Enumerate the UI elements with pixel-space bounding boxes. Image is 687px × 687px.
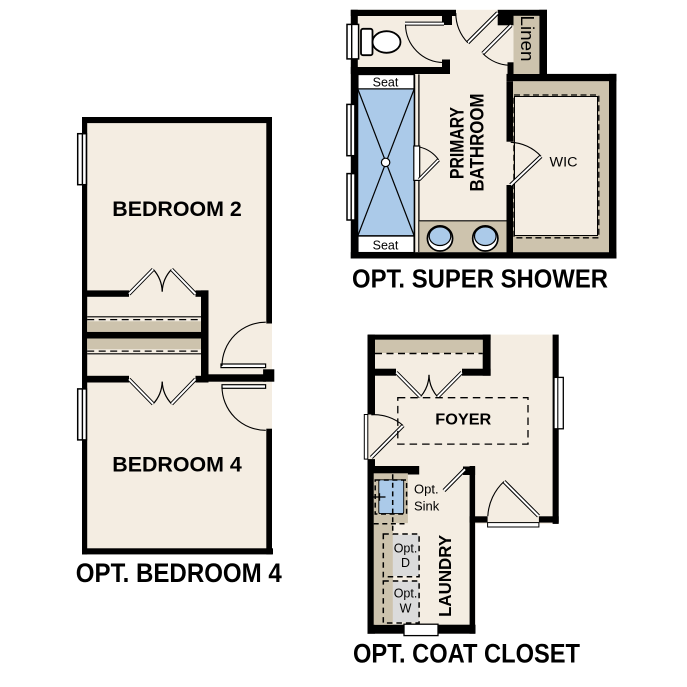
svg-text:FOYER: FOYER xyxy=(435,412,491,429)
svg-text:Seat: Seat xyxy=(373,76,399,90)
svg-text:BATHROOM: BATHROOM xyxy=(467,94,489,192)
svg-text:Opt.: Opt. xyxy=(394,587,418,601)
svg-text:Opt.: Opt. xyxy=(394,541,418,555)
svg-text:OPT. COAT CLOSET: OPT. COAT CLOSET xyxy=(353,639,580,669)
svg-text:Linen: Linen xyxy=(517,16,538,62)
svg-text:LAUNDRY: LAUNDRY xyxy=(435,535,455,617)
svg-text:W: W xyxy=(400,602,412,616)
svg-text:D: D xyxy=(401,556,410,570)
svg-text:WIC: WIC xyxy=(550,155,578,170)
svg-text:Seat: Seat xyxy=(373,239,399,253)
svg-text:OPT. BEDROOM 4: OPT. BEDROOM 4 xyxy=(76,558,282,588)
svg-text:Opt.: Opt. xyxy=(414,481,439,496)
svg-text:BEDROOM 2: BEDROOM 2 xyxy=(112,197,242,221)
svg-text:BEDROOM 4: BEDROOM 4 xyxy=(112,453,242,477)
svg-text:Sink: Sink xyxy=(414,499,440,514)
svg-text:PRIMARY: PRIMARY xyxy=(447,107,469,179)
svg-text:OPT. SUPER SHOWER: OPT. SUPER SHOWER xyxy=(352,266,608,294)
